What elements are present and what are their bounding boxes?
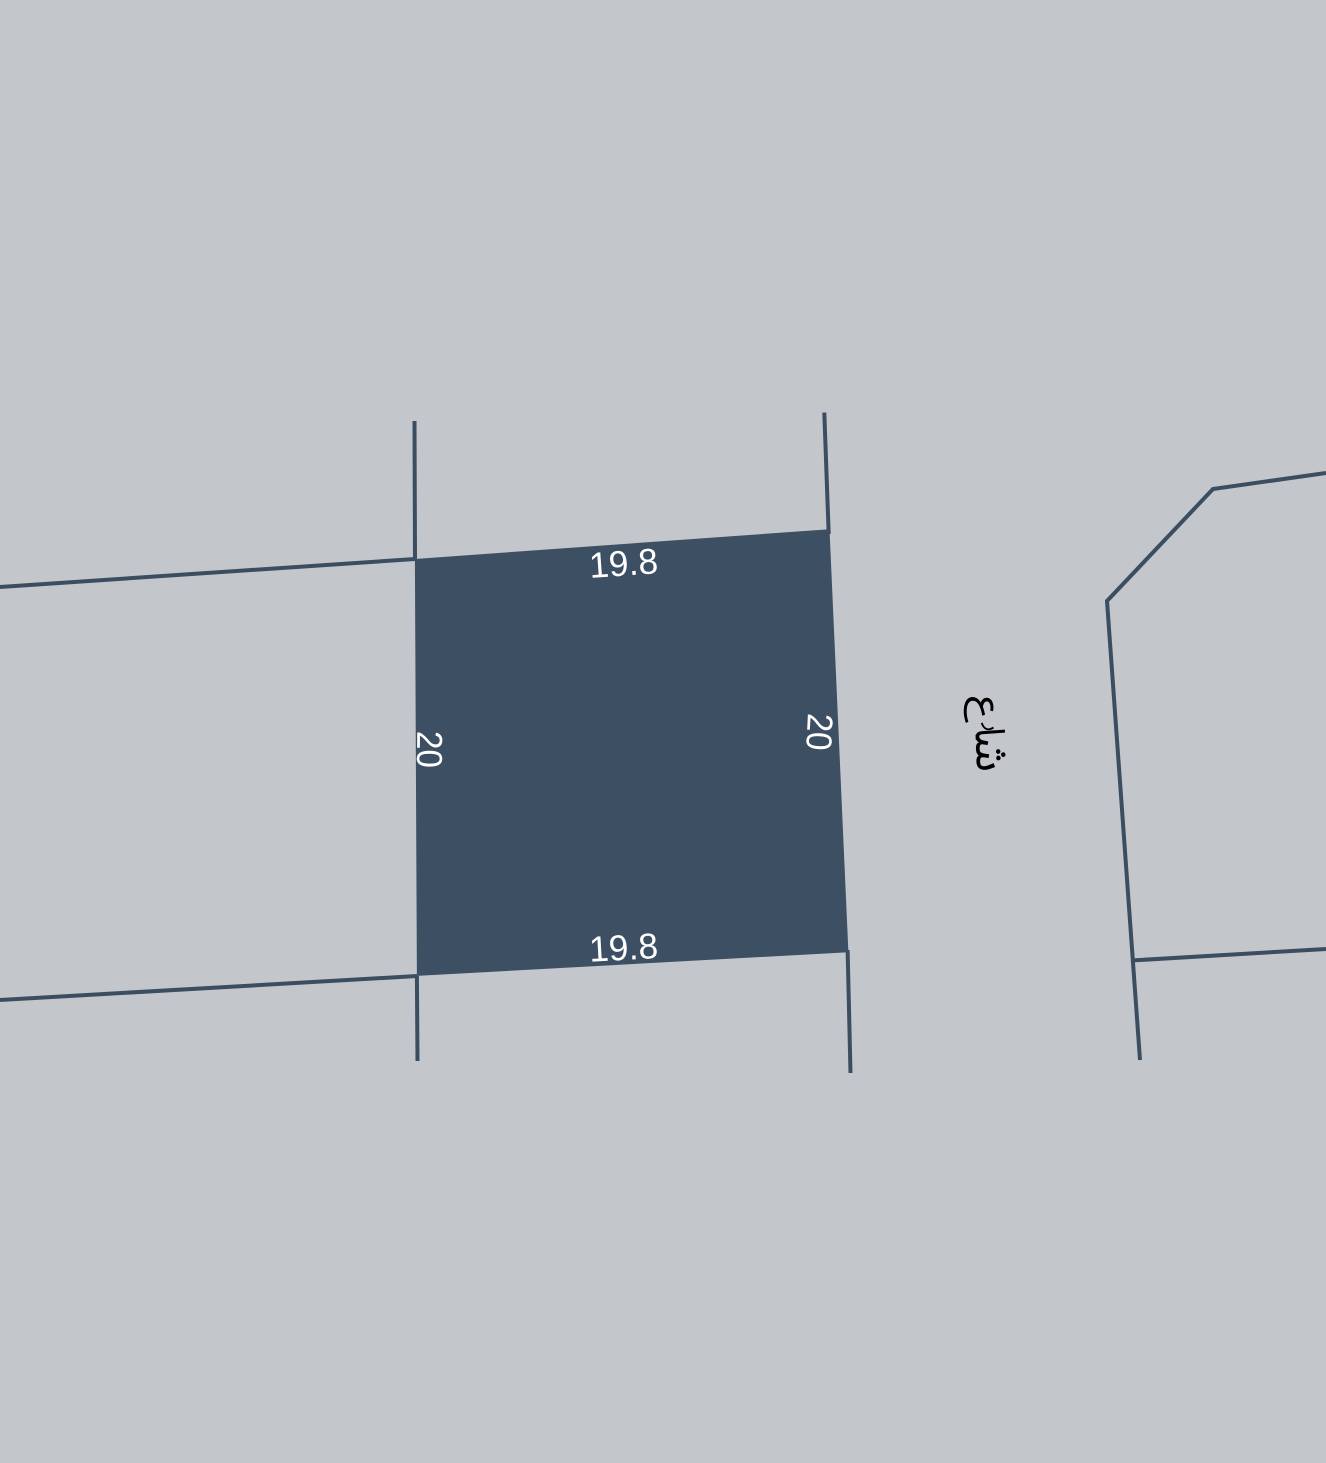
svg-text:20: 20 [798, 713, 841, 752]
svg-text:20: 20 [409, 731, 450, 768]
svg-text:19.8: 19.8 [588, 925, 659, 970]
svg-text:19.8: 19.8 [588, 540, 660, 586]
